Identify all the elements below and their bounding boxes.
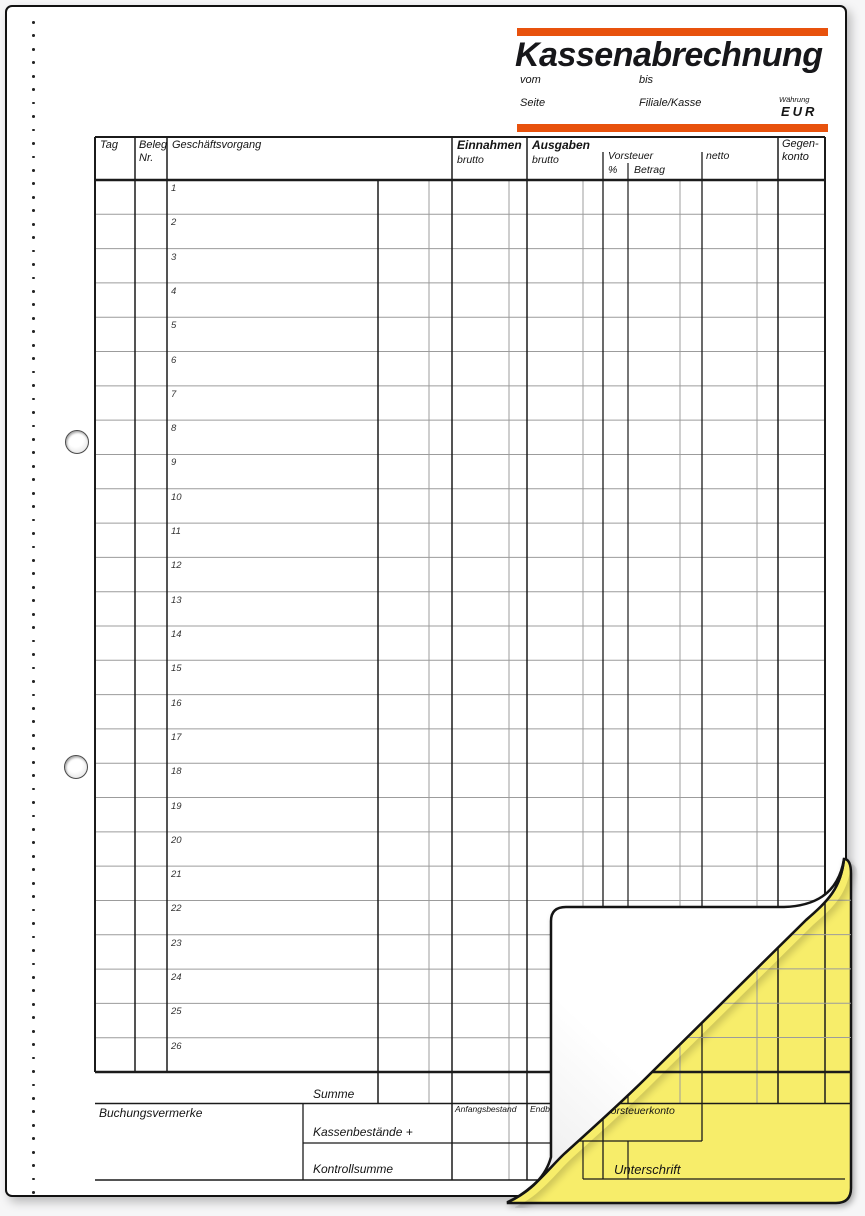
- field-label-vom: vom: [520, 75, 541, 87]
- col-header-vorsteuer-betrag: Betrag: [634, 165, 665, 176]
- form-sheet: [5, 5, 847, 1197]
- col-header-vorsteuer-pct: %: [608, 165, 617, 176]
- accent-bar-top: [517, 28, 828, 36]
- currency-value: EUR: [781, 105, 817, 119]
- col-header-einnahmen: Einnahmen: [457, 139, 522, 152]
- col-header-vorsteuer: Vorsteuer: [608, 151, 653, 162]
- currency-label: Währung: [779, 96, 809, 104]
- col-header-einnahmen-brutto: brutto: [457, 155, 484, 166]
- field-label-bis: bis: [639, 75, 653, 87]
- form-title: Kassenabrechnung: [515, 38, 823, 74]
- field-label-seite: Seite: [520, 98, 545, 110]
- kontrollsumme-label: Kontrollsumme: [313, 1163, 393, 1176]
- summe-label: Summe: [313, 1088, 354, 1101]
- punch-hole-top: [65, 430, 89, 454]
- buchungsvermerke-label: Buchungsvermerke: [99, 1107, 202, 1120]
- accent-bar-bottom: [517, 124, 828, 132]
- punch-hole-bottom: [64, 755, 88, 779]
- form-product-shot: Kassenabrechnung vom bis Seite Filiale/K…: [0, 0, 865, 1216]
- col-header-ausgaben-brutto: brutto: [532, 155, 559, 166]
- kassenbestaende-label: Kassenbestände +: [313, 1126, 413, 1139]
- col-header-beleg-nr: Nr.: [139, 153, 153, 165]
- endbestand-label: Endbestand: [530, 1105, 575, 1114]
- anfangsbestand-label: Anfangsbestand: [455, 1105, 516, 1114]
- col-header-netto: netto: [706, 151, 729, 162]
- col-header-tag: Tag: [100, 140, 118, 152]
- col-header-ausgaben: Ausgaben: [532, 139, 590, 152]
- col-header-geschaeftsvorgang: Geschäftsvorgang: [172, 140, 261, 152]
- col-header-gegenkonto-2: konto: [782, 152, 809, 164]
- col-header-gegenkonto-1: Gegen-: [782, 139, 819, 151]
- field-label-filiale-kasse: Filiale/Kasse: [639, 98, 701, 110]
- col-header-beleg: Beleg: [139, 140, 167, 152]
